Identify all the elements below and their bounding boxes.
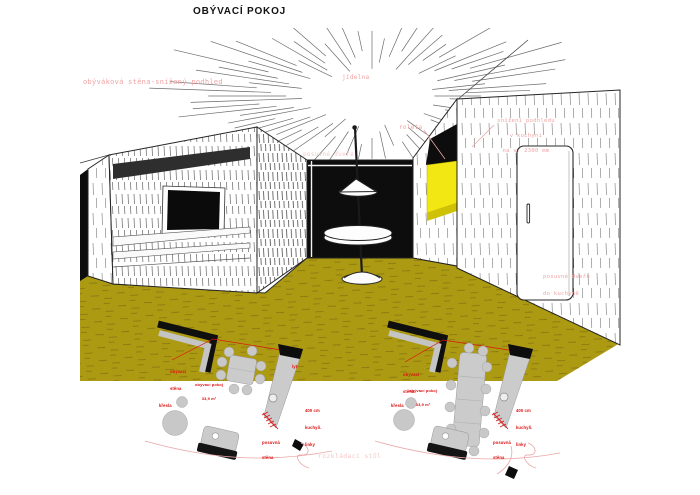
door-handle (527, 204, 530, 223)
tv-screen (167, 190, 220, 230)
dimension-line (145, 441, 332, 458)
armchair (163, 411, 188, 436)
armchair (177, 397, 188, 408)
armchair (406, 398, 417, 409)
left-doorway (80, 169, 88, 281)
sketch-page: OBÝVACÍ POKOJ obýváková stěna-snížený po… (0, 0, 700, 495)
sofa (197, 425, 242, 460)
dimension-squiggle (525, 443, 536, 468)
kitchen-door (517, 146, 573, 300)
media-wall-unit (109, 127, 257, 293)
armchair (394, 410, 415, 431)
dining-table (226, 355, 257, 385)
blind-wall-strip (413, 99, 457, 266)
room-sketch (0, 0, 700, 495)
